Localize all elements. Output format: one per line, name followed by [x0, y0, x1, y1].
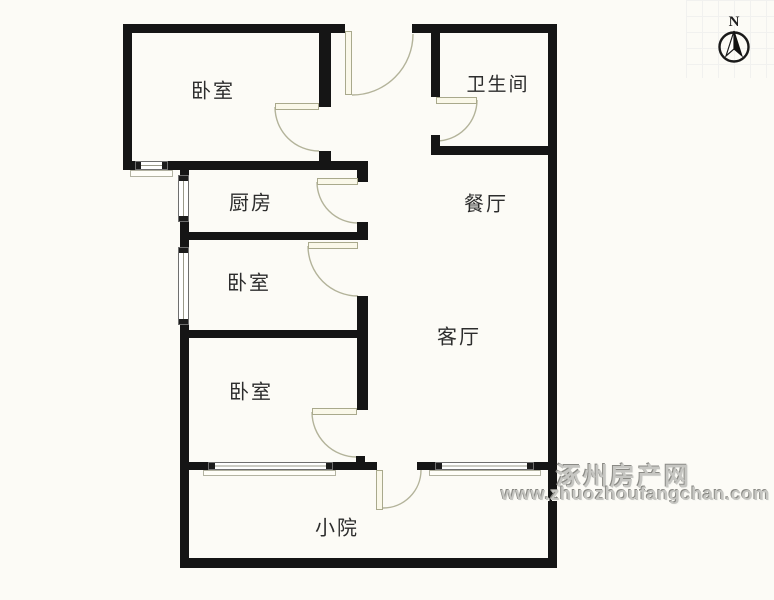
entrance-door-panel [345, 31, 352, 95]
kitchen-door-arc [317, 182, 358, 223]
living-bottom-wall-a [180, 462, 210, 470]
bedroom-lower-door-panel [312, 408, 357, 415]
room-label-dining: 餐厅 [464, 188, 508, 217]
bedroom-divider [180, 330, 368, 338]
outer-left-wall-lower [180, 161, 189, 568]
bedroom-middle-door-arc [308, 246, 358, 296]
kitchen-bedroom-divider [180, 232, 368, 240]
living-bottom-wall-b [333, 462, 377, 470]
room-label-kitchen: 厨房 [229, 187, 273, 216]
bedroom-top-door-panel [275, 103, 319, 110]
living-room-window [435, 462, 534, 470]
bedroom-top-door-arc [275, 107, 319, 151]
kitchen-door-panel [317, 178, 358, 185]
room-label-bedroom-lower: 卧室 [229, 376, 273, 405]
yard-bottom-wall [180, 558, 557, 568]
bathroom-left-wall-upper [431, 24, 440, 97]
yard-door-panel [376, 470, 383, 510]
room-label-bedroom-middle: 卧室 [227, 267, 271, 296]
room-label-yard: 小院 [315, 512, 359, 541]
room-label-bedroom-top: 卧室 [191, 75, 235, 104]
yard-door-arc [383, 470, 421, 508]
compass-n-letter: N [729, 14, 740, 30]
living-bottom-wall-c [417, 462, 435, 470]
bathroom-door-arc [436, 100, 477, 141]
door-swing-arcs [0, 0, 774, 600]
bedroom-lower-window [208, 462, 333, 470]
entrance-door-arc [352, 34, 413, 95]
bedroom-top-right-wall [319, 24, 331, 107]
room-label-living: 客厅 [437, 321, 481, 350]
floor-plan: 卧室 卫生间 厨房 餐厅 卧室 客厅 卧室 小院 N 涿州房产网 www.zhu… [0, 0, 774, 600]
bedroom-top-window [135, 161, 168, 170]
bedroom-lower-door-arc [312, 412, 357, 457]
bedroom-lower-window-sill [203, 470, 336, 476]
bathroom-door-panel [436, 97, 477, 104]
living-room-window-sill [429, 470, 541, 476]
outer-left-wall-upper [123, 24, 132, 170]
north-compass-icon: N [712, 10, 756, 68]
bedroom-middle-window [178, 247, 189, 325]
room-label-bathroom: 卫生间 [466, 70, 529, 97]
kitchen-right-wall-upper [357, 161, 368, 182]
watermark-site-url: www.zhuozhoufangchan.com [501, 483, 770, 505]
bathroom-bottom-wall [431, 146, 557, 155]
kitchen-window [178, 175, 189, 222]
bedroom-top-window-sill [130, 170, 173, 177]
bedroom-lower-right-wall [357, 338, 368, 410]
bedroom-top-door-stub [319, 151, 331, 161]
bedroom-middle-door-panel [308, 242, 358, 249]
top-wall-left [123, 24, 345, 33]
